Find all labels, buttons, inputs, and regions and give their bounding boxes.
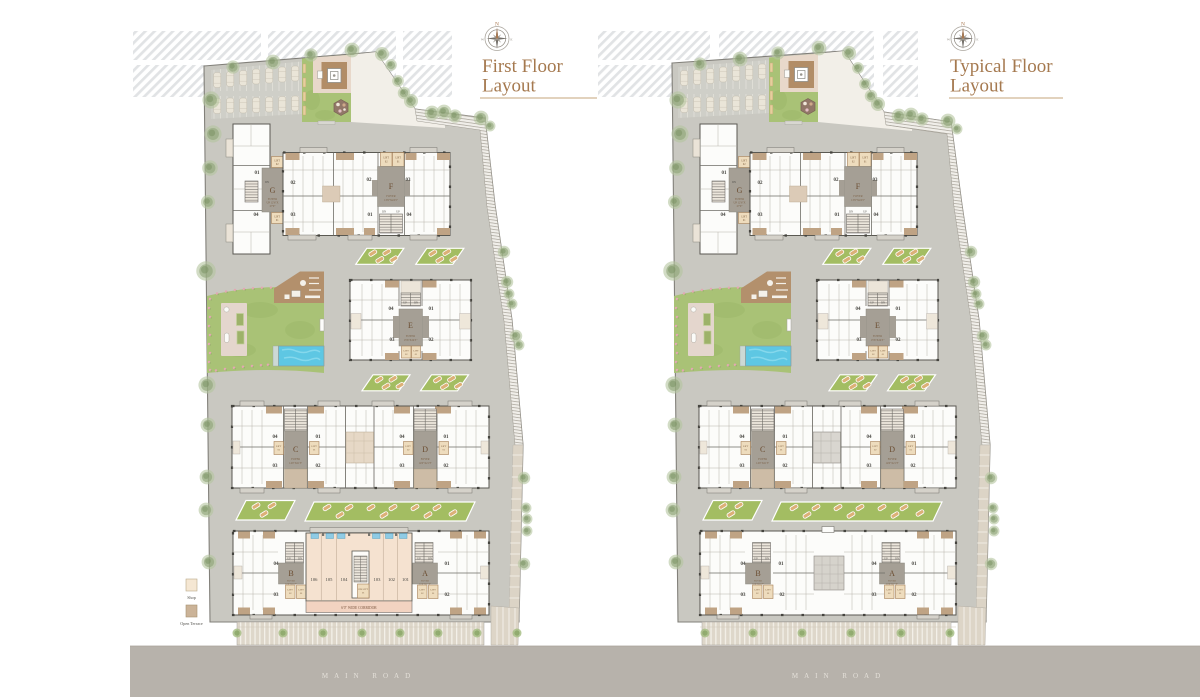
svg-text:103: 103 xyxy=(374,577,382,582)
svg-text:First Floor: First Floor xyxy=(482,56,563,77)
svg-text:MAIN ROAD: MAIN ROAD xyxy=(322,672,416,680)
svg-text:104: 104 xyxy=(341,577,349,582)
svg-text:Open Terrace: Open Terrace xyxy=(180,621,203,626)
svg-text:Layout: Layout xyxy=(482,76,537,97)
svg-text:6'0" WIDE CORRIDOR: 6'0" WIDE CORRIDOR xyxy=(341,606,377,610)
svg-text:Layout: Layout xyxy=(950,76,1005,97)
svg-text:04: 04 xyxy=(872,562,878,567)
svg-text:01: 01 xyxy=(779,562,785,567)
svg-text:03: 03 xyxy=(872,593,878,598)
svg-text:Typical Floor: Typical Floor xyxy=(950,56,1053,77)
svg-text:105: 105 xyxy=(326,577,334,582)
svg-text:102: 102 xyxy=(388,577,396,582)
svg-text:MAIN ROAD: MAIN ROAD xyxy=(792,672,886,680)
svg-text:Shop: Shop xyxy=(187,595,196,600)
svg-text:101: 101 xyxy=(402,577,410,582)
svg-text:02: 02 xyxy=(780,593,786,598)
svg-text:106: 106 xyxy=(311,577,319,582)
